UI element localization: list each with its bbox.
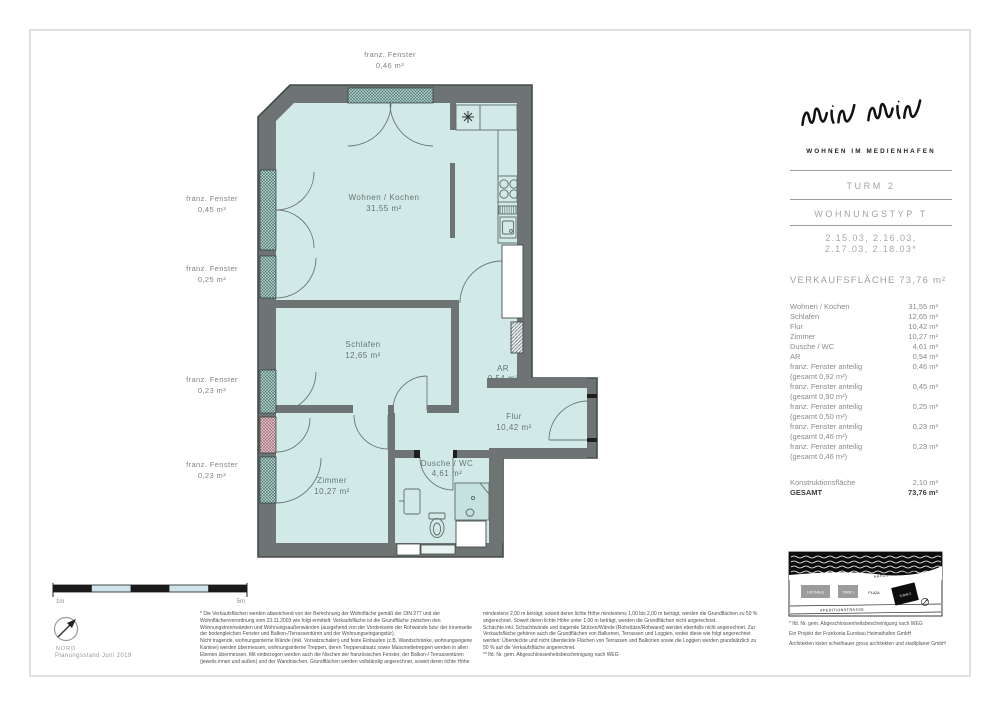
- row-label: franz. Fenster anteilig: [790, 382, 862, 392]
- table-row: Dusche / WC4,61 m²: [790, 342, 938, 352]
- divider: [790, 199, 952, 200]
- window-label: franz. Fenster: [186, 264, 238, 273]
- row-value: 10,42 m²: [908, 322, 938, 332]
- room-area: 0,54 m²: [488, 374, 519, 383]
- row-label: Schlafen: [790, 312, 819, 322]
- window-left-pink: [260, 417, 276, 453]
- fine-print-paragraph: mindestens 2,00 m beträgt; soweit deren …: [483, 611, 761, 625]
- row-label: Zimmer: [790, 332, 815, 342]
- row-value: 4,61 m²: [913, 342, 938, 352]
- tower-title: TURM 2: [790, 181, 952, 191]
- row-value: 0,25 m²: [913, 402, 938, 412]
- row-sublabel: (gesamt 0,46 m²): [790, 432, 938, 442]
- fine-print-right: mindestens 2,00 m beträgt; soweit deren …: [483, 611, 761, 659]
- unit-type-title: WOHNUNGSTYP T: [790, 209, 952, 219]
- divider: [790, 170, 952, 171]
- row-value: 0,45 m²: [913, 382, 938, 392]
- footnote: Architekten kister scheithauer gross arc…: [789, 641, 947, 647]
- footnote: * lfd. Nr. gem. Abgeschlossenheitsbesche…: [789, 621, 947, 627]
- compass-label: NORD: [56, 646, 76, 652]
- row-value: 0,54 m²: [913, 352, 938, 362]
- plan-status: Planungsstand Juni 2019: [55, 653, 132, 659]
- building-label: LOFTHAUS: [807, 591, 824, 595]
- unit-numbers-line1: 2.15.03, 2.16.03,: [790, 233, 952, 243]
- footnote: Ein Projekt der Frankonia Eurobau Heimat…: [789, 631, 947, 637]
- room-area: 10,42 m²: [496, 423, 532, 432]
- window-top: [348, 88, 433, 103]
- room-label: Dusche / WC: [421, 459, 474, 468]
- sales-area-title: VERKAUFSFLÄCHE 73,76 m²: [790, 275, 962, 286]
- table-row: franz. Fenster anteilig0,23 m²: [790, 442, 938, 452]
- row-label: franz. Fenster anteilig: [790, 362, 862, 372]
- fine-print-paragraph: Nicht tragende, wohnungsinterne Wände (i…: [200, 638, 476, 665]
- total-row: GESAMT73,76 m²: [790, 488, 938, 498]
- table-row: franz. Fenster anteilig0,46 m²: [790, 362, 938, 372]
- row-value: 0,23 m²: [913, 422, 938, 432]
- table-row: franz. Fenster anteilig0,23 m²: [790, 422, 938, 432]
- table-row: Zimmer10,27 m²: [790, 332, 938, 342]
- table-row: AR0,54 m²: [790, 352, 938, 362]
- room-label: Flur: [506, 412, 522, 421]
- window-label: franz. Fenster: [186, 460, 238, 469]
- row-label: franz. Fenster anteilig: [790, 442, 862, 452]
- window-area: 0,46 m²: [376, 61, 404, 70]
- window-left-1: [260, 170, 276, 250]
- table-row: Wohnen / Kochen31,55 m²: [790, 302, 938, 312]
- window-left-2: [260, 256, 276, 298]
- window-left-3: [260, 370, 276, 413]
- scale-bar: 1m 5m: [53, 583, 247, 605]
- building-label: TURM 1: [842, 591, 854, 595]
- room-label: Zimmer: [317, 476, 347, 485]
- row-label: Konstruktionsfläche: [790, 478, 855, 488]
- row-value: 0,46 m²: [913, 362, 938, 372]
- footnotes: * lfd. Nr. gem. Abgeschlossenheitsbesche…: [789, 621, 947, 650]
- table-row: franz. Fenster anteilig0,25 m²: [790, 402, 938, 412]
- plan-sheet: Wohnen / Kochen 31,55 m² Schlafen 12,65 …: [0, 0, 999, 707]
- winwin-logo: [801, 99, 921, 125]
- scale-label-5m: 5m: [237, 599, 245, 605]
- row-label: GESAMT: [790, 488, 822, 498]
- logo-tagline: WOHNEN IM MEDIENHAFEN: [790, 148, 952, 155]
- table-row: Flur10,42 m²: [790, 322, 938, 332]
- window-area: 0,23 m²: [198, 471, 226, 480]
- construction-row: Konstruktionsfläche2,10 m²: [790, 478, 938, 488]
- fine-print-footnote: ** lfd. Nr. gem. Abgeschlossenheitsbesch…: [483, 652, 761, 659]
- row-value: 10,27 m²: [908, 332, 938, 342]
- north-compass-icon: NORD: [55, 618, 78, 653]
- row-value: 73,76 m²: [908, 488, 938, 498]
- room-area: 12,65 m²: [345, 351, 381, 360]
- room-label: Schlafen: [345, 340, 380, 349]
- row-label: Wohnen / Kochen: [790, 302, 850, 312]
- row-value: 2,10 m²: [913, 478, 938, 488]
- fine-print-paragraph: * Die Verkaufsflächen werden abweichend …: [200, 611, 476, 638]
- room-label: AR: [497, 364, 509, 373]
- oven-icon: [499, 206, 517, 214]
- street-label: SPEDITIONSTRASSE: [820, 608, 864, 613]
- window-label: franz. Fenster: [186, 194, 238, 203]
- floor-plan: Wohnen / Kochen 31,55 m² Schlafen 12,65 …: [186, 50, 597, 557]
- table-row: Schlafen12,65 m²: [790, 312, 938, 322]
- row-sublabel: (gesamt 0,46 m²): [790, 452, 938, 462]
- window-area: 0,23 m²: [198, 386, 226, 395]
- window-area: 0,25 m²: [198, 275, 226, 284]
- row-label: franz. Fenster anteilig: [790, 422, 862, 432]
- unit-numbers-line2: 2.17.03, 2.18.03*: [790, 244, 952, 254]
- fine-print-left: * Die Verkaufsflächen werden abweichend …: [200, 611, 476, 665]
- scale-label-1m: 1m: [56, 599, 64, 605]
- table-row: franz. Fenster anteilig0,45 m²: [790, 382, 938, 392]
- site-map: HAFENPROMENADE LOFTHAUS TURM 1 PLAZA TUR…: [789, 552, 942, 616]
- row-sublabel: (gesamt 0,92 m²): [790, 372, 938, 382]
- room-area: 10,27 m²: [314, 487, 350, 496]
- window-label: franz. Fenster: [364, 50, 416, 59]
- window-area: 0,45 m²: [198, 205, 226, 214]
- row-value: 0,23 m²: [913, 442, 938, 452]
- fine-print-paragraph: Schächte inkl. Schachtwände und tragende…: [483, 625, 761, 652]
- row-sublabel: (gesamt 0,90 m²): [790, 392, 938, 402]
- row-label: Flur: [790, 322, 803, 332]
- room-label: Wohnen / Kochen: [349, 193, 420, 202]
- shower-icon: [455, 483, 489, 520]
- window-label: franz. Fenster: [186, 375, 238, 384]
- row-label: AR: [790, 352, 800, 362]
- window-left-4: [260, 457, 276, 503]
- row-label: franz. Fenster anteilig: [790, 402, 862, 412]
- area-table: Wohnen / Kochen31,55 m² Schlafen12,65 m²…: [790, 302, 938, 498]
- row-value: 31,55 m²: [908, 302, 938, 312]
- divider: [790, 225, 952, 226]
- row-sublabel: (gesamt 0,50 m²): [790, 412, 938, 422]
- room-area: 4,61 m²: [432, 469, 463, 478]
- row-value: 12,65 m²: [908, 312, 938, 322]
- building-label: PLAZA: [868, 591, 880, 595]
- room-area: 31,55 m²: [366, 204, 402, 213]
- row-label: Dusche / WC: [790, 342, 834, 352]
